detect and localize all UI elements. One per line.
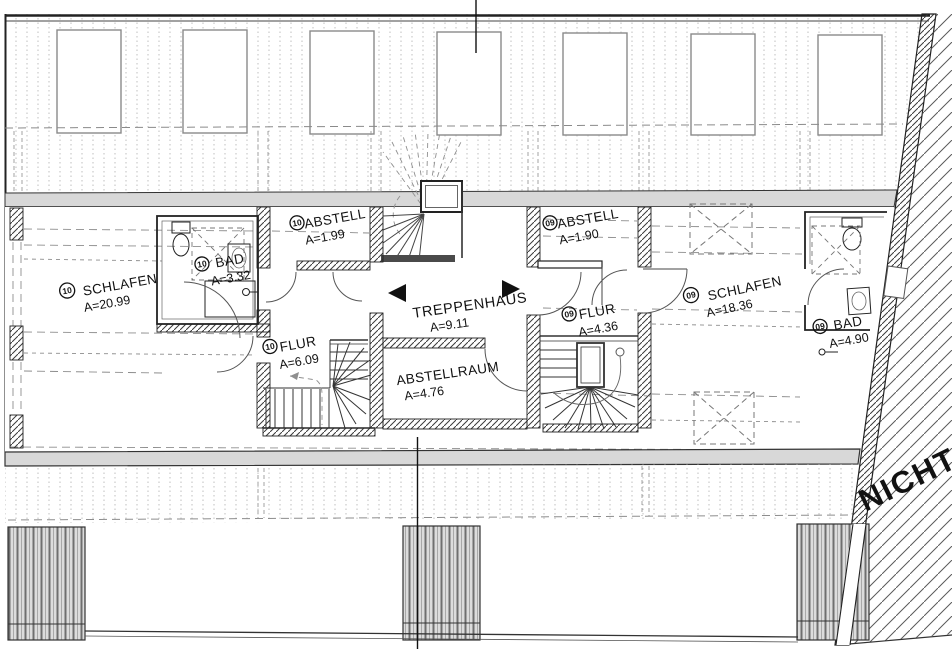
wall-left-pier [10,208,23,240]
skylight [563,33,627,135]
wall-a [257,363,270,428]
badge-text: 09 [564,308,575,320]
badge-text: 10 [62,285,73,297]
wall-stair-left-south [263,428,375,436]
badge-text: 10 [264,341,275,353]
skylight [437,32,501,135]
wall-c [527,207,540,267]
skylight [310,31,374,134]
wall-bad10-south [157,324,270,332]
facade-pillars [8,524,869,642]
badge-text: 09 [815,321,826,333]
wall-a [257,207,270,268]
skylight [57,30,121,133]
wall-left-pier [10,415,23,448]
wall-stair-right-south [543,424,638,432]
wall-left-pier [10,326,23,360]
pillar [8,527,85,640]
skylight [183,30,247,133]
wall-a [257,310,270,337]
skylight [818,35,882,135]
badge-text: 09 [544,217,555,229]
lower-eaves-band [5,464,858,523]
wall-abstell10-south [297,261,370,270]
badge-text: 10 [196,258,207,270]
floorplan-canvas: 10 SCHLAFEN A=20.99 10 BAD A=3.32 10 ABS… [0,0,952,653]
wall-c [527,315,540,428]
wall-d [638,313,651,428]
badge-text: 10 [291,217,302,229]
skylight [691,34,755,135]
lower-wall-band [5,449,860,466]
floorplan-drawing: 10 SCHLAFEN A=20.99 10 BAD A=3.32 10 ABS… [0,0,952,653]
wall-b [370,313,383,428]
stair-landing-edge [381,255,455,262]
wall-abstellraum-south [383,419,527,429]
wall-d [638,207,651,267]
gable-fixture-box [884,266,908,298]
wall-treppenhaus-south [383,338,485,348]
wall-b [370,207,383,262]
